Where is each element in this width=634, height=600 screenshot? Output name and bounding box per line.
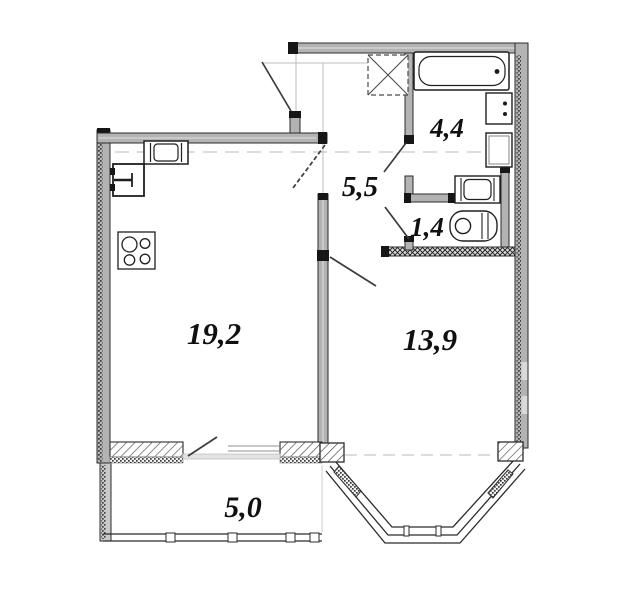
window-sill-wall-2-hatch	[280, 442, 322, 457]
wall-bath-wc-cap-left	[404, 193, 411, 203]
wall-wc-right	[501, 167, 509, 250]
bay-mullion-2	[436, 526, 441, 536]
refrigerator-icon	[110, 164, 144, 196]
window-sill-wall-1-hatch	[110, 442, 183, 457]
balcony-left-wall-texture	[101, 465, 106, 539]
room-label-balcony: 5,0	[224, 491, 262, 524]
balcony-door-threshold	[183, 454, 280, 459]
laundry-unit-icon	[455, 176, 500, 203]
washbasin-icon	[486, 93, 512, 124]
room-label-bedroom: 13,9	[403, 322, 457, 357]
bathtub-icon	[414, 52, 509, 90]
balcony-mullion-3	[286, 533, 295, 542]
room-label-hallway: 5,5	[342, 171, 378, 203]
window-sill-strip-1-texture	[110, 457, 183, 463]
window-sill-strip-2-texture	[280, 457, 322, 463]
vent-shaft-icon	[368, 55, 408, 95]
balcony-mullion-2	[228, 533, 237, 542]
floor-plan-canvas: 19,2 13,9 5,5 4,4 1,4 5,0	[0, 0, 634, 600]
toilet-icon	[450, 211, 497, 241]
wall-bath-wc-cap-right	[448, 193, 455, 203]
kitchen-sink-icon	[144, 141, 188, 164]
washing-machine-icon	[486, 133, 512, 167]
balcony-mullion-4	[310, 533, 319, 542]
balcony-mullion-1	[166, 533, 175, 542]
bay-mullion-1	[404, 526, 409, 536]
wall-room-top-end-cap	[318, 132, 327, 144]
wall-partition-door-node	[317, 250, 329, 261]
wall-entry-stub-cap	[289, 111, 301, 118]
room-label-bathroom: 4,4	[429, 113, 464, 143]
wall-right-texture	[517, 55, 522, 443]
bay-corner-block-right-hatch	[498, 442, 523, 461]
room-label-living-kitchen: 19,2	[187, 316, 241, 351]
background	[0, 0, 634, 600]
wall-top-end-cap	[288, 42, 298, 54]
floor-plan-svg: 19,2 13,9 5,5 4,4 1,4 5,0	[0, 0, 634, 600]
wall-right-window-patch-2	[522, 396, 528, 414]
wall-left-texture	[98, 132, 103, 462]
wall-wc-bottom-cap	[381, 246, 389, 257]
wall-right-window-patch-1	[522, 362, 528, 380]
room-label-wc: 1,4	[410, 212, 444, 242]
wall-partition-top-cap	[318, 193, 328, 200]
wall-wc-bottom-texture	[383, 247, 515, 256]
bay-corner-block-left-hatch	[320, 443, 344, 462]
wall-bath-wc	[405, 194, 455, 202]
